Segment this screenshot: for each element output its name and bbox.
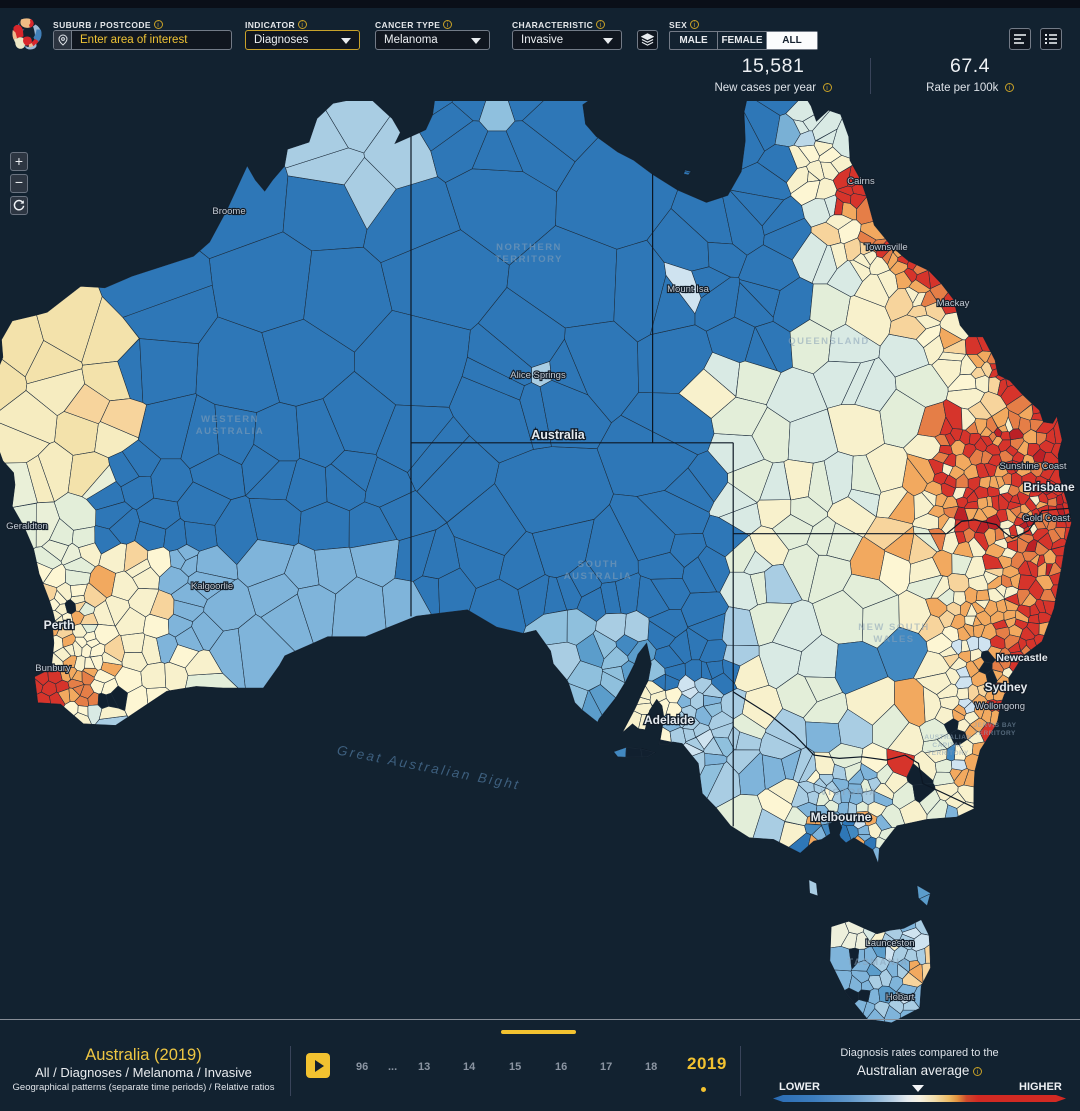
svg-text:CAPITAL: CAPITAL (932, 742, 963, 749)
svg-text:Adelaide: Adelaide (644, 713, 694, 727)
svg-text:Mackay: Mackay (937, 298, 970, 309)
svg-text:WESTERN: WESTERN (201, 414, 259, 425)
svg-text:NORTHERN: NORTHERN (496, 242, 562, 253)
svg-text:QUEENSLAND: QUEENSLAND (788, 336, 870, 347)
svg-text:SOUTH: SOUTH (578, 559, 619, 570)
svg-text:Wollongong: Wollongong (975, 701, 1025, 712)
svg-text:Gold Coast: Gold Coast (1022, 513, 1070, 524)
svg-text:TERRITORY: TERRITORY (974, 730, 1016, 737)
svg-text:WALES: WALES (873, 634, 914, 645)
svg-text:Townsville: Townsville (864, 242, 907, 253)
svg-text:Sydney: Sydney (985, 680, 1028, 694)
svg-text:AUSTRALIA: AUSTRALIA (196, 426, 264, 437)
svg-text:Brisbane: Brisbane (1023, 480, 1075, 494)
svg-text:Broome: Broome (212, 206, 245, 217)
svg-text:Sunshine Coast: Sunshine Coast (999, 461, 1066, 472)
svg-text:AUSTRALIA: AUSTRALIA (564, 571, 632, 582)
svg-text:TERRITORY: TERRITORY (927, 750, 969, 757)
svg-text:Launceston: Launceston (865, 938, 914, 949)
svg-text:Mount Isa: Mount Isa (667, 284, 709, 295)
svg-text:Perth: Perth (44, 618, 75, 632)
svg-text:NEW SOUTH: NEW SOUTH (858, 622, 930, 633)
svg-text:Australia: Australia (531, 428, 586, 442)
svg-text:VICTORIA: VICTORIA (820, 787, 877, 798)
svg-text:Kalgoorlie: Kalgoorlie (191, 581, 233, 592)
svg-text:Hobart: Hobart (886, 992, 915, 1003)
svg-text:Geraldton: Geraldton (6, 521, 48, 532)
svg-text:Melbourne: Melbourne (811, 810, 872, 824)
svg-text:JERVIS BAY: JERVIS BAY (974, 722, 1017, 729)
svg-text:Alice Springs: Alice Springs (510, 370, 566, 381)
svg-text:TERRITORY: TERRITORY (495, 254, 563, 265)
svg-text:Cairns: Cairns (847, 176, 875, 187)
svg-text:Bunbury: Bunbury (35, 663, 71, 674)
svg-text:TASMANIA: TASMANIA (847, 957, 908, 968)
svg-text:Newcastle: Newcastle (996, 652, 1048, 664)
svg-text:AUSTRALIAN: AUSTRALIAN (924, 734, 971, 741)
